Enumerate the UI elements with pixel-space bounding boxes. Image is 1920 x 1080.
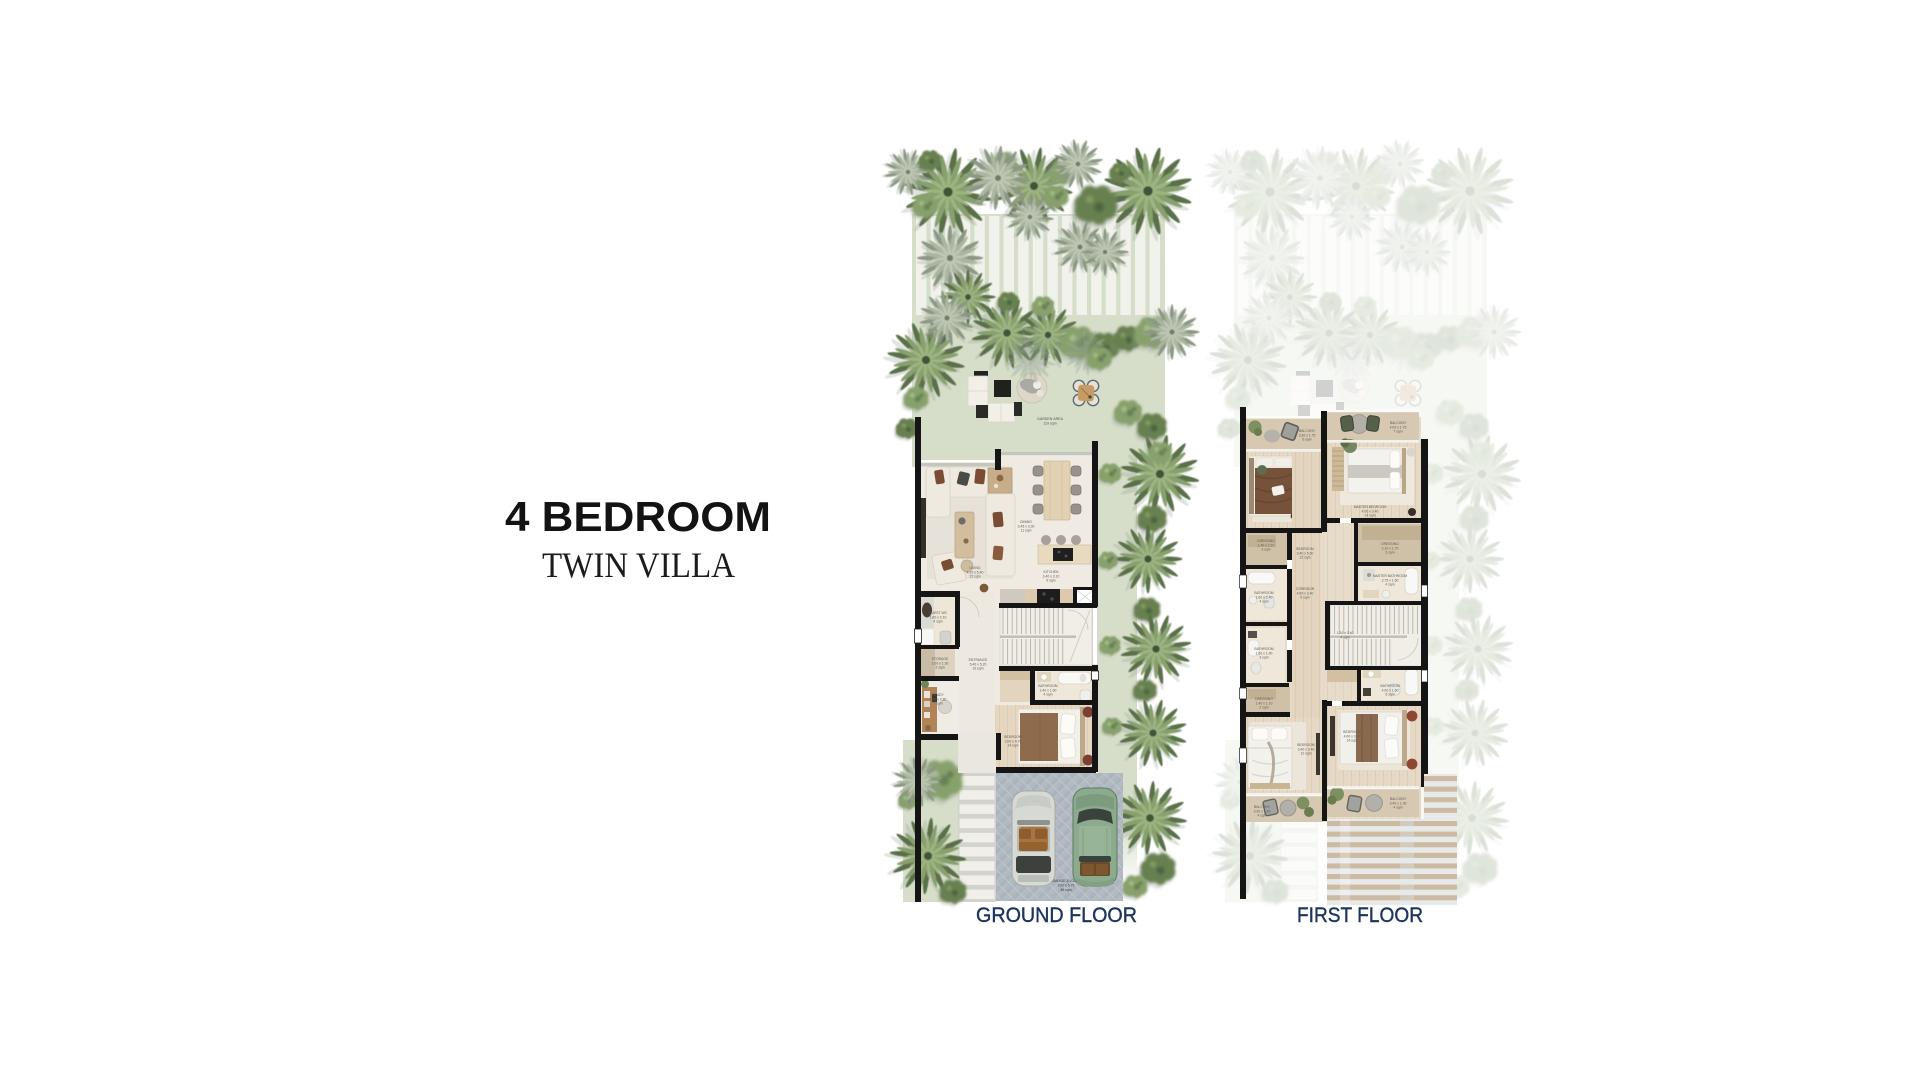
svg-text:GROUND FLOOR: GROUND FLOOR <box>976 903 1137 927</box>
svg-text:4 BEDROOM: 4 BEDROOM <box>505 493 771 540</box>
svg-text:FIRST FLOOR: FIRST FLOOR <box>1297 903 1423 927</box>
svg-text:TWIN VILLA: TWIN VILLA <box>542 545 735 585</box>
